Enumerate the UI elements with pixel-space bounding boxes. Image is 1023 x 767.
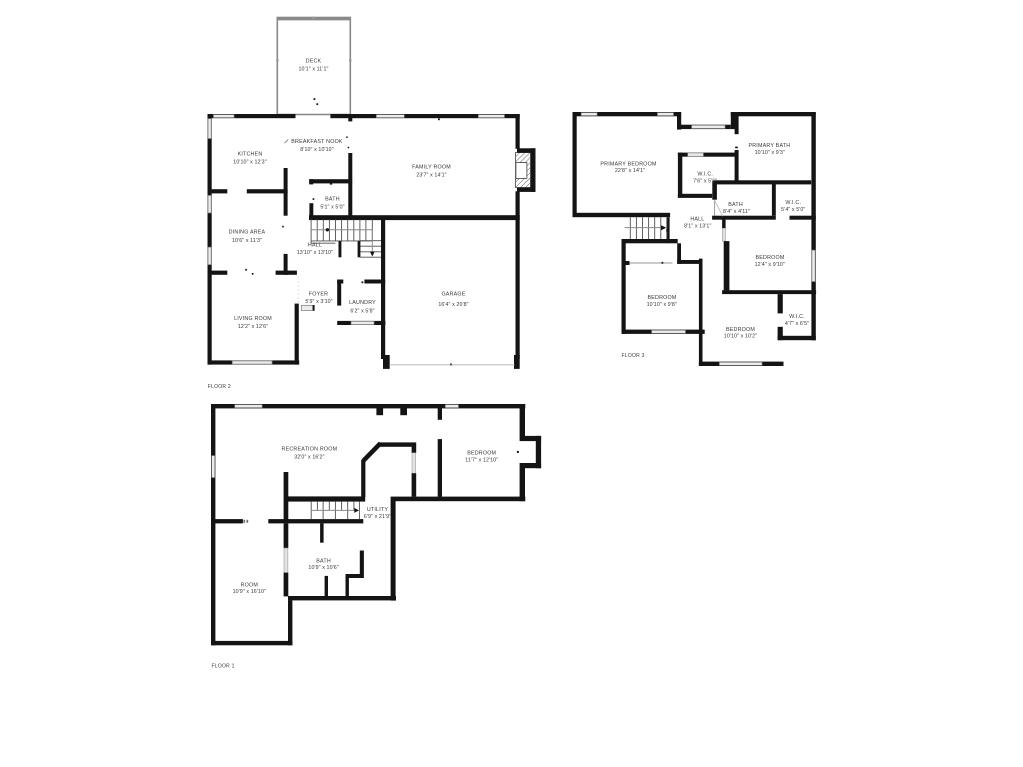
svg-text:DINING AREA: DINING AREA	[229, 230, 266, 236]
svg-text:23'7" x 14'1": 23'7" x 14'1"	[416, 172, 446, 178]
svg-text:BATH: BATH	[316, 558, 331, 564]
svg-text:13'10" x 13'10": 13'10" x 13'10"	[297, 250, 333, 256]
svg-text:LAUNDRY: LAUNDRY	[349, 300, 376, 306]
svg-text:HALL: HALL	[308, 243, 322, 249]
svg-text:LIVING ROOM: LIVING ROOM	[234, 316, 272, 322]
svg-text:BATH: BATH	[325, 197, 340, 203]
svg-text:5'4" x 5'0": 5'4" x 5'0"	[781, 207, 805, 213]
svg-text:6'2" x 5'8": 6'2" x 5'8"	[350, 308, 374, 314]
svg-text:22'8" x 14'1": 22'8" x 14'1"	[615, 168, 645, 174]
svg-text:6'9" x 21'9": 6'9" x 21'9"	[364, 514, 391, 520]
svg-text:BATH: BATH	[728, 202, 743, 208]
svg-text:W.I.C.: W.I.C.	[697, 172, 713, 178]
svg-text:10'9" x 10'6": 10'9" x 10'6"	[308, 565, 338, 571]
svg-text:10'10" x 12'3": 10'10" x 12'3"	[233, 159, 266, 165]
svg-text:PRIMARY BEDROOM: PRIMARY BEDROOM	[600, 162, 657, 168]
svg-text:HALL: HALL	[690, 217, 704, 223]
svg-text:BEDROOM: BEDROOM	[467, 451, 496, 457]
svg-text:10'10" x 10'2": 10'10" x 10'2"	[724, 334, 757, 340]
svg-text:BEDROOM: BEDROOM	[755, 255, 784, 261]
svg-text:FLOOR 3: FLOOR 3	[622, 353, 645, 359]
svg-text:GARAGE: GARAGE	[441, 292, 465, 298]
svg-text:10'10" x 9'8": 10'10" x 9'8"	[647, 302, 677, 308]
svg-text:KITCHEN: KITCHEN	[238, 152, 263, 158]
svg-text:10'10" x 9'3": 10'10" x 9'3"	[755, 150, 785, 156]
svg-text:FAMILY ROOM: FAMILY ROOM	[412, 164, 451, 170]
svg-text:FLOOR 2: FLOOR 2	[208, 384, 231, 390]
svg-text:8'4" x 4'11": 8'4" x 4'11"	[723, 209, 750, 215]
svg-text:12'4" x 9'10": 12'4" x 9'10"	[755, 262, 785, 268]
svg-text:16'4" x 20'8": 16'4" x 20'8"	[438, 302, 468, 308]
svg-text:11'7" x 12'10": 11'7" x 12'10"	[465, 458, 498, 464]
svg-text:FOYER: FOYER	[309, 291, 328, 297]
svg-text:UTILITY: UTILITY	[367, 507, 389, 513]
svg-text:32'0" x 16'2": 32'0" x 16'2"	[294, 455, 324, 461]
svg-text:10'6" x 11'3": 10'6" x 11'3"	[232, 238, 262, 244]
svg-text:8'10" x 10'10": 8'10" x 10'10"	[300, 147, 333, 153]
svg-text:12'2" x 12'6": 12'2" x 12'6"	[238, 324, 268, 330]
svg-text:W.I.C.: W.I.C.	[789, 314, 805, 320]
svg-text:BEDROOM: BEDROOM	[647, 295, 676, 301]
svg-text:RECREATION ROOM: RECREATION ROOM	[282, 447, 338, 453]
svg-text:BEDROOM: BEDROOM	[726, 327, 755, 333]
svg-text:PRIMARY BATH: PRIMARY BATH	[748, 143, 790, 149]
svg-text:5'1" x 5'0": 5'1" x 5'0"	[320, 204, 344, 210]
svg-text:10'1" x 11'1": 10'1" x 11'1"	[299, 67, 329, 73]
svg-text:BREAKFAST NOOK: BREAKFAST NOOK	[291, 139, 343, 145]
svg-text:10'9" x 16'10": 10'9" x 16'10"	[233, 589, 266, 595]
svg-text:ROOM: ROOM	[241, 582, 259, 588]
svg-text:FLOOR 1: FLOOR 1	[212, 664, 235, 670]
svg-text:DECK: DECK	[306, 59, 322, 65]
svg-text:8'1" x 13'1": 8'1" x 13'1"	[684, 223, 711, 229]
svg-text:7'6" x 5'6": 7'6" x 5'6"	[693, 179, 717, 185]
svg-text:4'7" x 6'5": 4'7" x 6'5"	[785, 321, 809, 327]
svg-text:W.I.C.: W.I.C.	[785, 200, 801, 206]
svg-text:5'9" x 3'10": 5'9" x 3'10"	[305, 299, 332, 305]
